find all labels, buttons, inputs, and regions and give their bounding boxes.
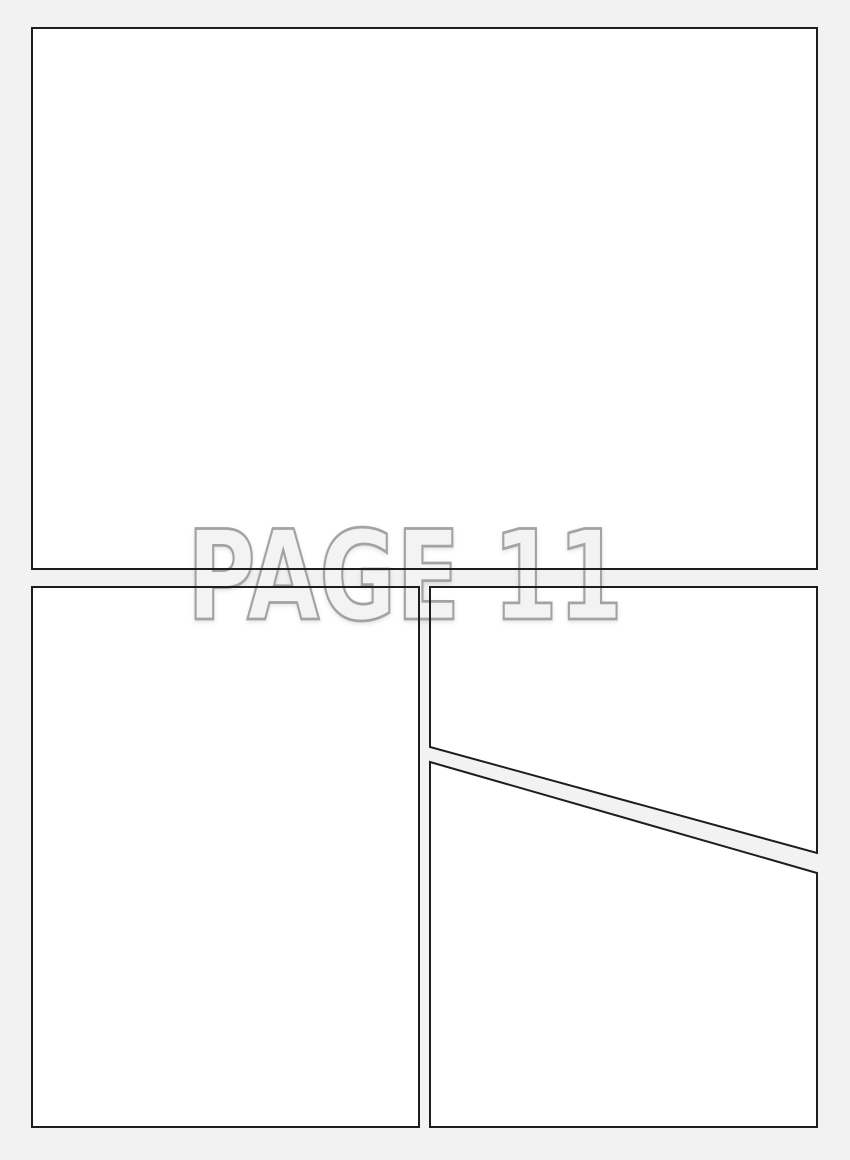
panel-1-top-fill (32, 28, 817, 569)
panel-2-bottom-left-fill (32, 587, 419, 1127)
page-number-watermark: PAGE 11 (187, 505, 623, 649)
comic-page-canvas: PAGE 11 (0, 0, 850, 1160)
comic-page-template: PAGE 11 (0, 0, 850, 1160)
